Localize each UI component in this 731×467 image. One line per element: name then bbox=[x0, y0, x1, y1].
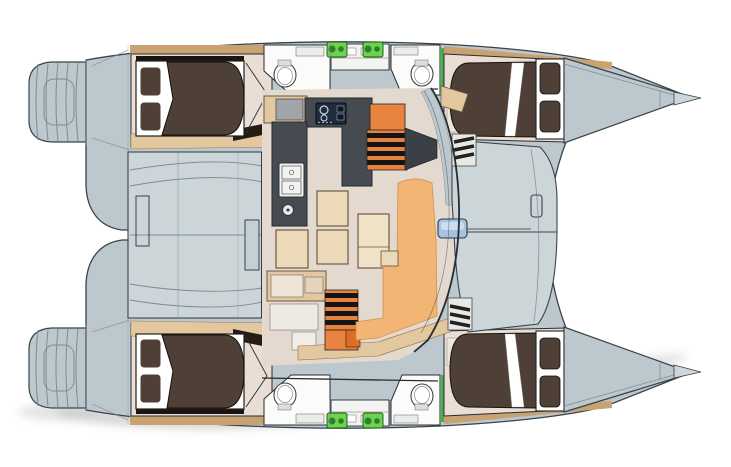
companionway-steps-top bbox=[367, 104, 407, 170]
pillow bbox=[540, 63, 560, 94]
bed-duvet bbox=[162, 62, 244, 135]
vanity-shelf bbox=[296, 47, 324, 56]
bow-fitting bbox=[674, 92, 701, 105]
pillow bbox=[540, 101, 560, 132]
companionway-steps-bottom bbox=[325, 290, 360, 350]
oven-appliance bbox=[276, 99, 303, 120]
pillow bbox=[139, 101, 162, 132]
aft-cabin bbox=[130, 45, 272, 149]
bow bbox=[564, 58, 701, 143]
dinette-seat bbox=[317, 191, 348, 226]
dinette-seat bbox=[317, 230, 348, 264]
cockpit bbox=[128, 152, 263, 318]
bathroom-forward bbox=[391, 45, 440, 95]
cabin-wood-trim bbox=[130, 45, 272, 54]
boat-plan-svg bbox=[0, 0, 731, 467]
dinette-seat bbox=[276, 230, 308, 268]
cockpit-bench bbox=[245, 220, 259, 270]
sofa-cushion bbox=[381, 251, 398, 266]
pillow bbox=[139, 66, 162, 97]
stove-icon bbox=[316, 103, 346, 124]
swim-platform bbox=[29, 62, 86, 142]
catamaran-floor-plan bbox=[0, 0, 731, 467]
vanity-shelf bbox=[394, 47, 418, 55]
